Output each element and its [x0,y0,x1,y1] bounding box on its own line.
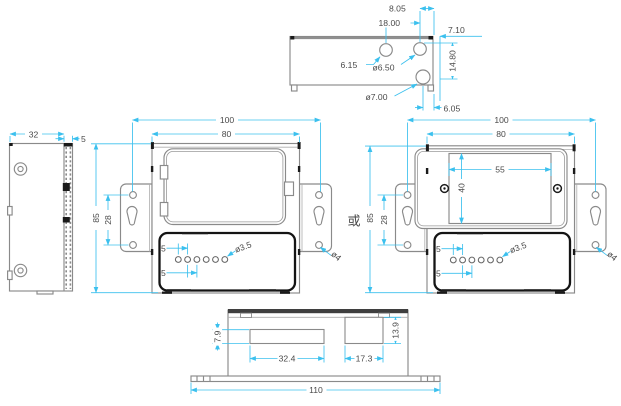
side-view-dimensions [10,134,80,142]
dim-label-110: 110 [309,385,323,395]
cutout-slot-wide [250,330,324,344]
top-view-panel [290,37,433,86]
dim-label-dia-7-00: ø7.00 [366,92,388,102]
antenna-hole-large [416,70,430,84]
or-label: 或 [348,214,361,229]
dim-label-85-a: 85 [91,213,101,223]
dim-label-6-05: 6.05 [444,103,461,113]
edge-tick [151,249,153,255]
dim-label-5a-b: 5 [436,244,441,254]
module-tab [285,182,294,196]
side-clip [63,217,70,223]
corner-tick [151,142,154,149]
edge-tick [573,249,575,255]
front-view-a: 100 80 85 28 5 5 ø3.5 ø4 [91,115,344,293]
base-flange [191,376,440,382]
side-notch [8,207,13,216]
dim-label-8-05: 8.05 [389,3,406,13]
corner-tick [290,36,294,40]
edge-tick [298,249,300,255]
dim-label-40: 40 [456,183,466,193]
edge-tick [151,166,153,172]
dim-label-32: 32 [29,129,39,139]
dim-label-14-80: 14.80 [447,50,457,72]
dim-label-7-10: 7.10 [448,25,465,35]
dim-label-85-b: 85 [365,213,375,223]
dim-label-dia-4-a: ø4 [329,249,343,263]
corner-tick [426,144,429,151]
corner-tick [429,36,434,40]
side-clip [63,183,70,191]
top-view: 8.05 18.00 7.10 6.15 ø6.50 14.80 ø7.00 6… [290,3,482,113]
dim-label-7-9: 7.9 [212,330,222,342]
module-clip [160,166,168,180]
dim-label-100-b: 100 [494,115,509,125]
edge-tick [426,249,428,255]
dim-label-5b-a: 5 [161,268,166,278]
dim-label-28-a: 28 [103,215,113,225]
dim-label-6-15: 6.15 [341,60,358,70]
engineering-drawing: 8.05 18.00 7.10 6.15 ø6.50 14.80 ø7.00 6… [0,0,621,406]
bottom-view: 7.9 32.4 17.3 13.9 110 [191,309,440,395]
corner-tick [573,144,576,151]
antenna-hole [380,44,393,57]
dim-label-5b-b: 5 [436,268,441,278]
dim-label-5a-a: 5 [161,243,166,253]
cutout-slot-tall [345,317,383,343]
dim-label-32-4: 32.4 [279,353,296,363]
antenna-hole [414,43,427,56]
edge-tick [426,168,428,174]
corner-tick [64,143,73,147]
bezel-screw-center [443,187,445,189]
dim-label-80-b: 80 [496,129,506,139]
front-view-b: 100 80 55 40 85 28 5 5 ø3.5 ø4 [365,115,620,293]
edge-tick [573,168,575,174]
dim-label-80-a: 80 [222,129,232,139]
corner-tick [9,143,13,146]
dim-label-5-side: 5 [81,134,86,144]
dim-label-dia-4-b: ø4 [605,249,619,263]
edge-tick [298,166,300,172]
drawing-canvas: 8.05 18.00 7.10 6.15 ø6.50 14.80 ø7.00 6… [0,0,621,406]
bezel-screw-center [556,187,558,189]
small-detail [241,313,252,317]
dim-label-28-b: 28 [379,215,389,225]
bottom-top-bar [228,309,408,313]
dim-label-13-9: 13.9 [390,322,400,339]
foot-tab [428,85,434,91]
dim-label-18-00: 18.00 [379,18,401,28]
foot-tab [292,85,298,91]
module-clip [160,203,168,217]
dim-label-dia-6-50: ø6.50 [373,62,395,72]
pcb-module-outline [164,149,286,225]
mounting-ear-right [575,184,607,252]
side-notch [8,271,13,280]
dim-label-55: 55 [495,164,505,174]
dim-label-100-a: 100 [220,115,235,125]
dim-label-17-3: 17.3 [356,353,373,363]
bottom-tab [37,291,53,294]
side-view: 32 5 [8,129,86,294]
corner-tick [298,142,301,149]
